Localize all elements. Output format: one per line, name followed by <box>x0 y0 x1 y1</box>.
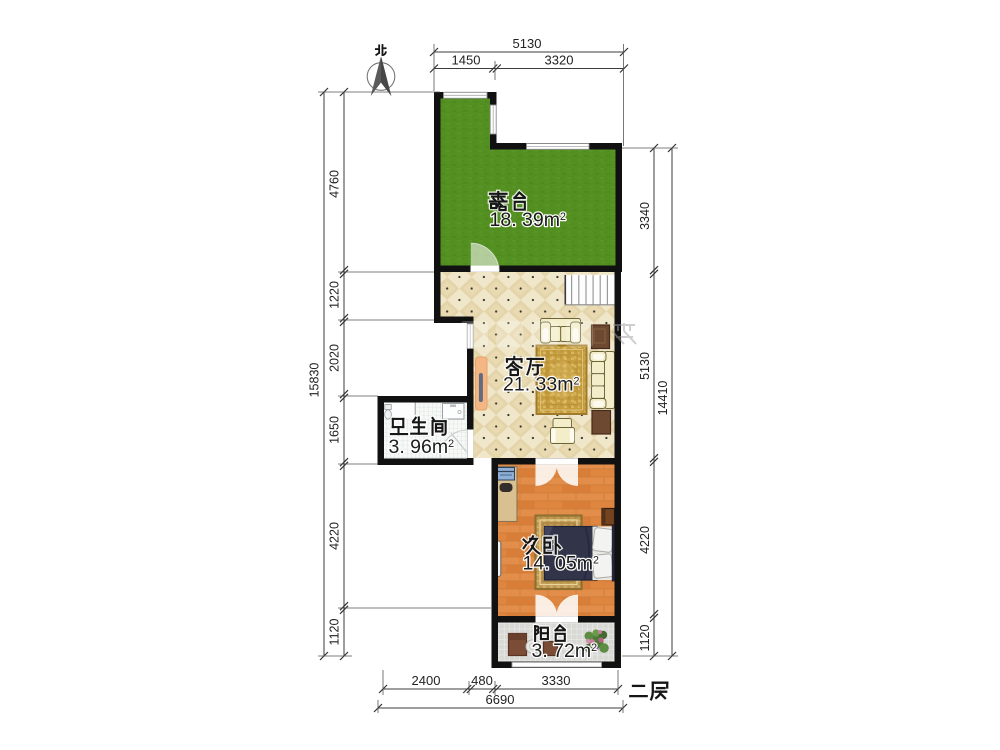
svg-text:14. 05m2: 14. 05m2 <box>523 553 599 575</box>
svg-text:2400: 2400 <box>412 673 441 688</box>
svg-text:2020: 2020 <box>328 344 342 372</box>
svg-text:3320: 3320 <box>545 53 574 68</box>
svg-text:3. 72m2: 3. 72m2 <box>532 640 598 662</box>
svg-text:4760: 4760 <box>328 170 342 198</box>
svg-text:1220: 1220 <box>328 281 342 309</box>
svg-text:3340: 3340 <box>638 202 652 230</box>
svg-text:1120: 1120 <box>328 619 342 646</box>
svg-text:21. 33m2: 21. 33m2 <box>503 374 579 396</box>
svg-text:4220: 4220 <box>328 522 342 550</box>
svg-text:1450: 1450 <box>452 53 481 68</box>
svg-text:3. 96m2: 3. 96m2 <box>389 436 455 458</box>
svg-text:480: 480 <box>471 673 493 688</box>
svg-text:1650: 1650 <box>328 416 342 444</box>
svg-text:4220: 4220 <box>638 526 652 554</box>
svg-text:5130: 5130 <box>513 36 542 51</box>
svg-text:3330: 3330 <box>542 673 571 688</box>
svg-text:6690: 6690 <box>486 692 515 707</box>
svg-text:1120: 1120 <box>638 625 652 652</box>
svg-text:15830: 15830 <box>308 363 322 398</box>
svg-text:5130: 5130 <box>638 352 652 380</box>
svg-text:18. 39m2: 18. 39m2 <box>490 209 566 231</box>
svg-text:14410: 14410 <box>656 381 670 416</box>
